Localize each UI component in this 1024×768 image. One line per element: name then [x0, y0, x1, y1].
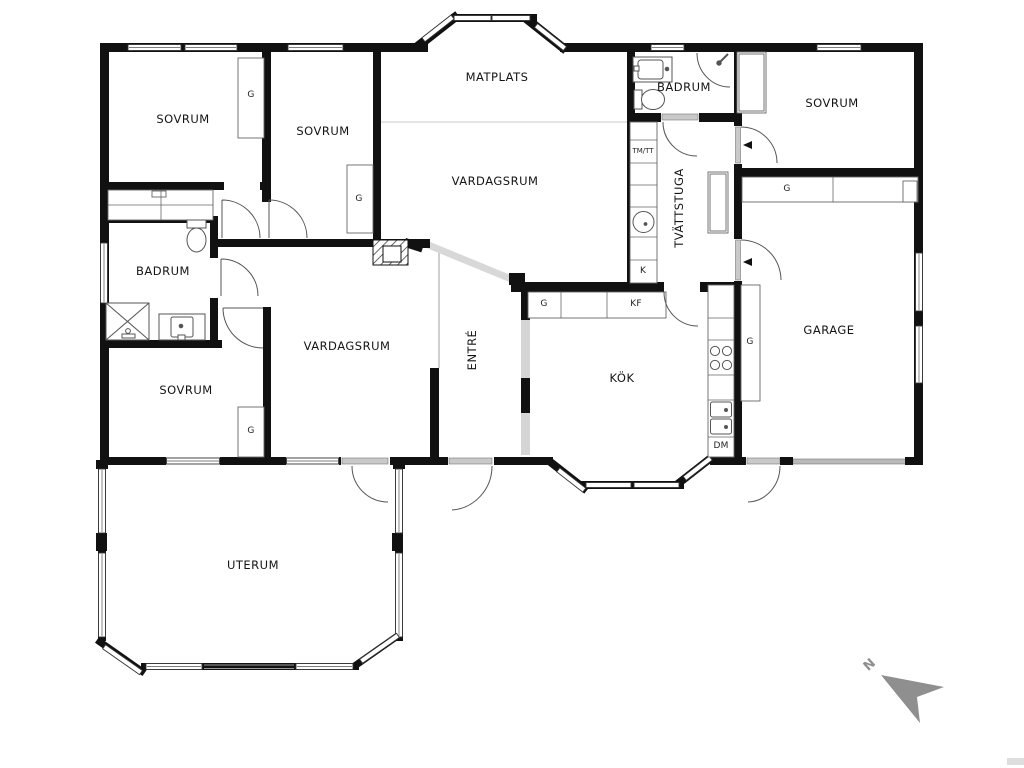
wardrobe-label-1: G	[247, 90, 254, 100]
window-midlines	[104, 48, 919, 462]
dishwasher-label: DM	[713, 441, 728, 451]
interior-walls	[100, 43, 914, 465]
entry-sidelight-glass	[521, 320, 530, 378]
room-label-bedroom-nw: SOVRUM	[156, 112, 209, 126]
room-label-bedroom-n: SOVRUM	[296, 124, 349, 138]
garage-door-jamb-left	[780, 457, 793, 465]
wardrobe-label-2: G	[355, 194, 362, 204]
room-label-conservatory: UTERUM	[227, 558, 279, 572]
room-label-bathroom-w: BADRUM	[136, 264, 190, 278]
floorplan-drawing	[0, 0, 1024, 768]
room-label-bedroom-ne: SOVRUM	[805, 96, 858, 110]
entry-sidelight-glass-2	[521, 413, 530, 455]
closets	[108, 52, 918, 457]
fridge-freezer-label: KF	[630, 299, 641, 309]
garage-door-jamb-right	[905, 457, 915, 465]
room-label-living-s: VARDAGSRUM	[304, 339, 391, 353]
wardrobe-label-5: G	[783, 184, 790, 194]
fridge-label: K	[640, 266, 646, 276]
room-label-garage: GARAGE	[803, 323, 854, 337]
washer-dryer-label: TM/TT	[632, 147, 653, 155]
room-label-kitchen: KÖK	[609, 371, 634, 385]
room-label-dining: MATPLATS	[466, 70, 529, 84]
room-label-entry: ENTRÉ	[465, 330, 479, 371]
door-swing-arrows	[743, 141, 752, 266]
wardrobe-label-4: G	[540, 299, 547, 309]
room-label-bathroom-ne: BADRUM	[657, 80, 711, 94]
watermark	[1007, 758, 1024, 765]
garage-door	[793, 459, 907, 464]
fireplace	[373, 240, 408, 265]
floorplan-page: SOVRUM SOVRUM SOVRUM SOVRUM MATPLATS VAR…	[0, 0, 1024, 768]
room-label-laundry: TVÄTTSTUGA	[672, 168, 686, 248]
room-label-bedroom-sw: SOVRUM	[159, 383, 212, 397]
wardrobe-label-3: G	[247, 426, 254, 436]
wardrobe-label-6: G	[746, 337, 753, 347]
room-label-living-n: VARDAGSRUM	[452, 174, 539, 188]
north-arrow-icon	[881, 675, 944, 723]
